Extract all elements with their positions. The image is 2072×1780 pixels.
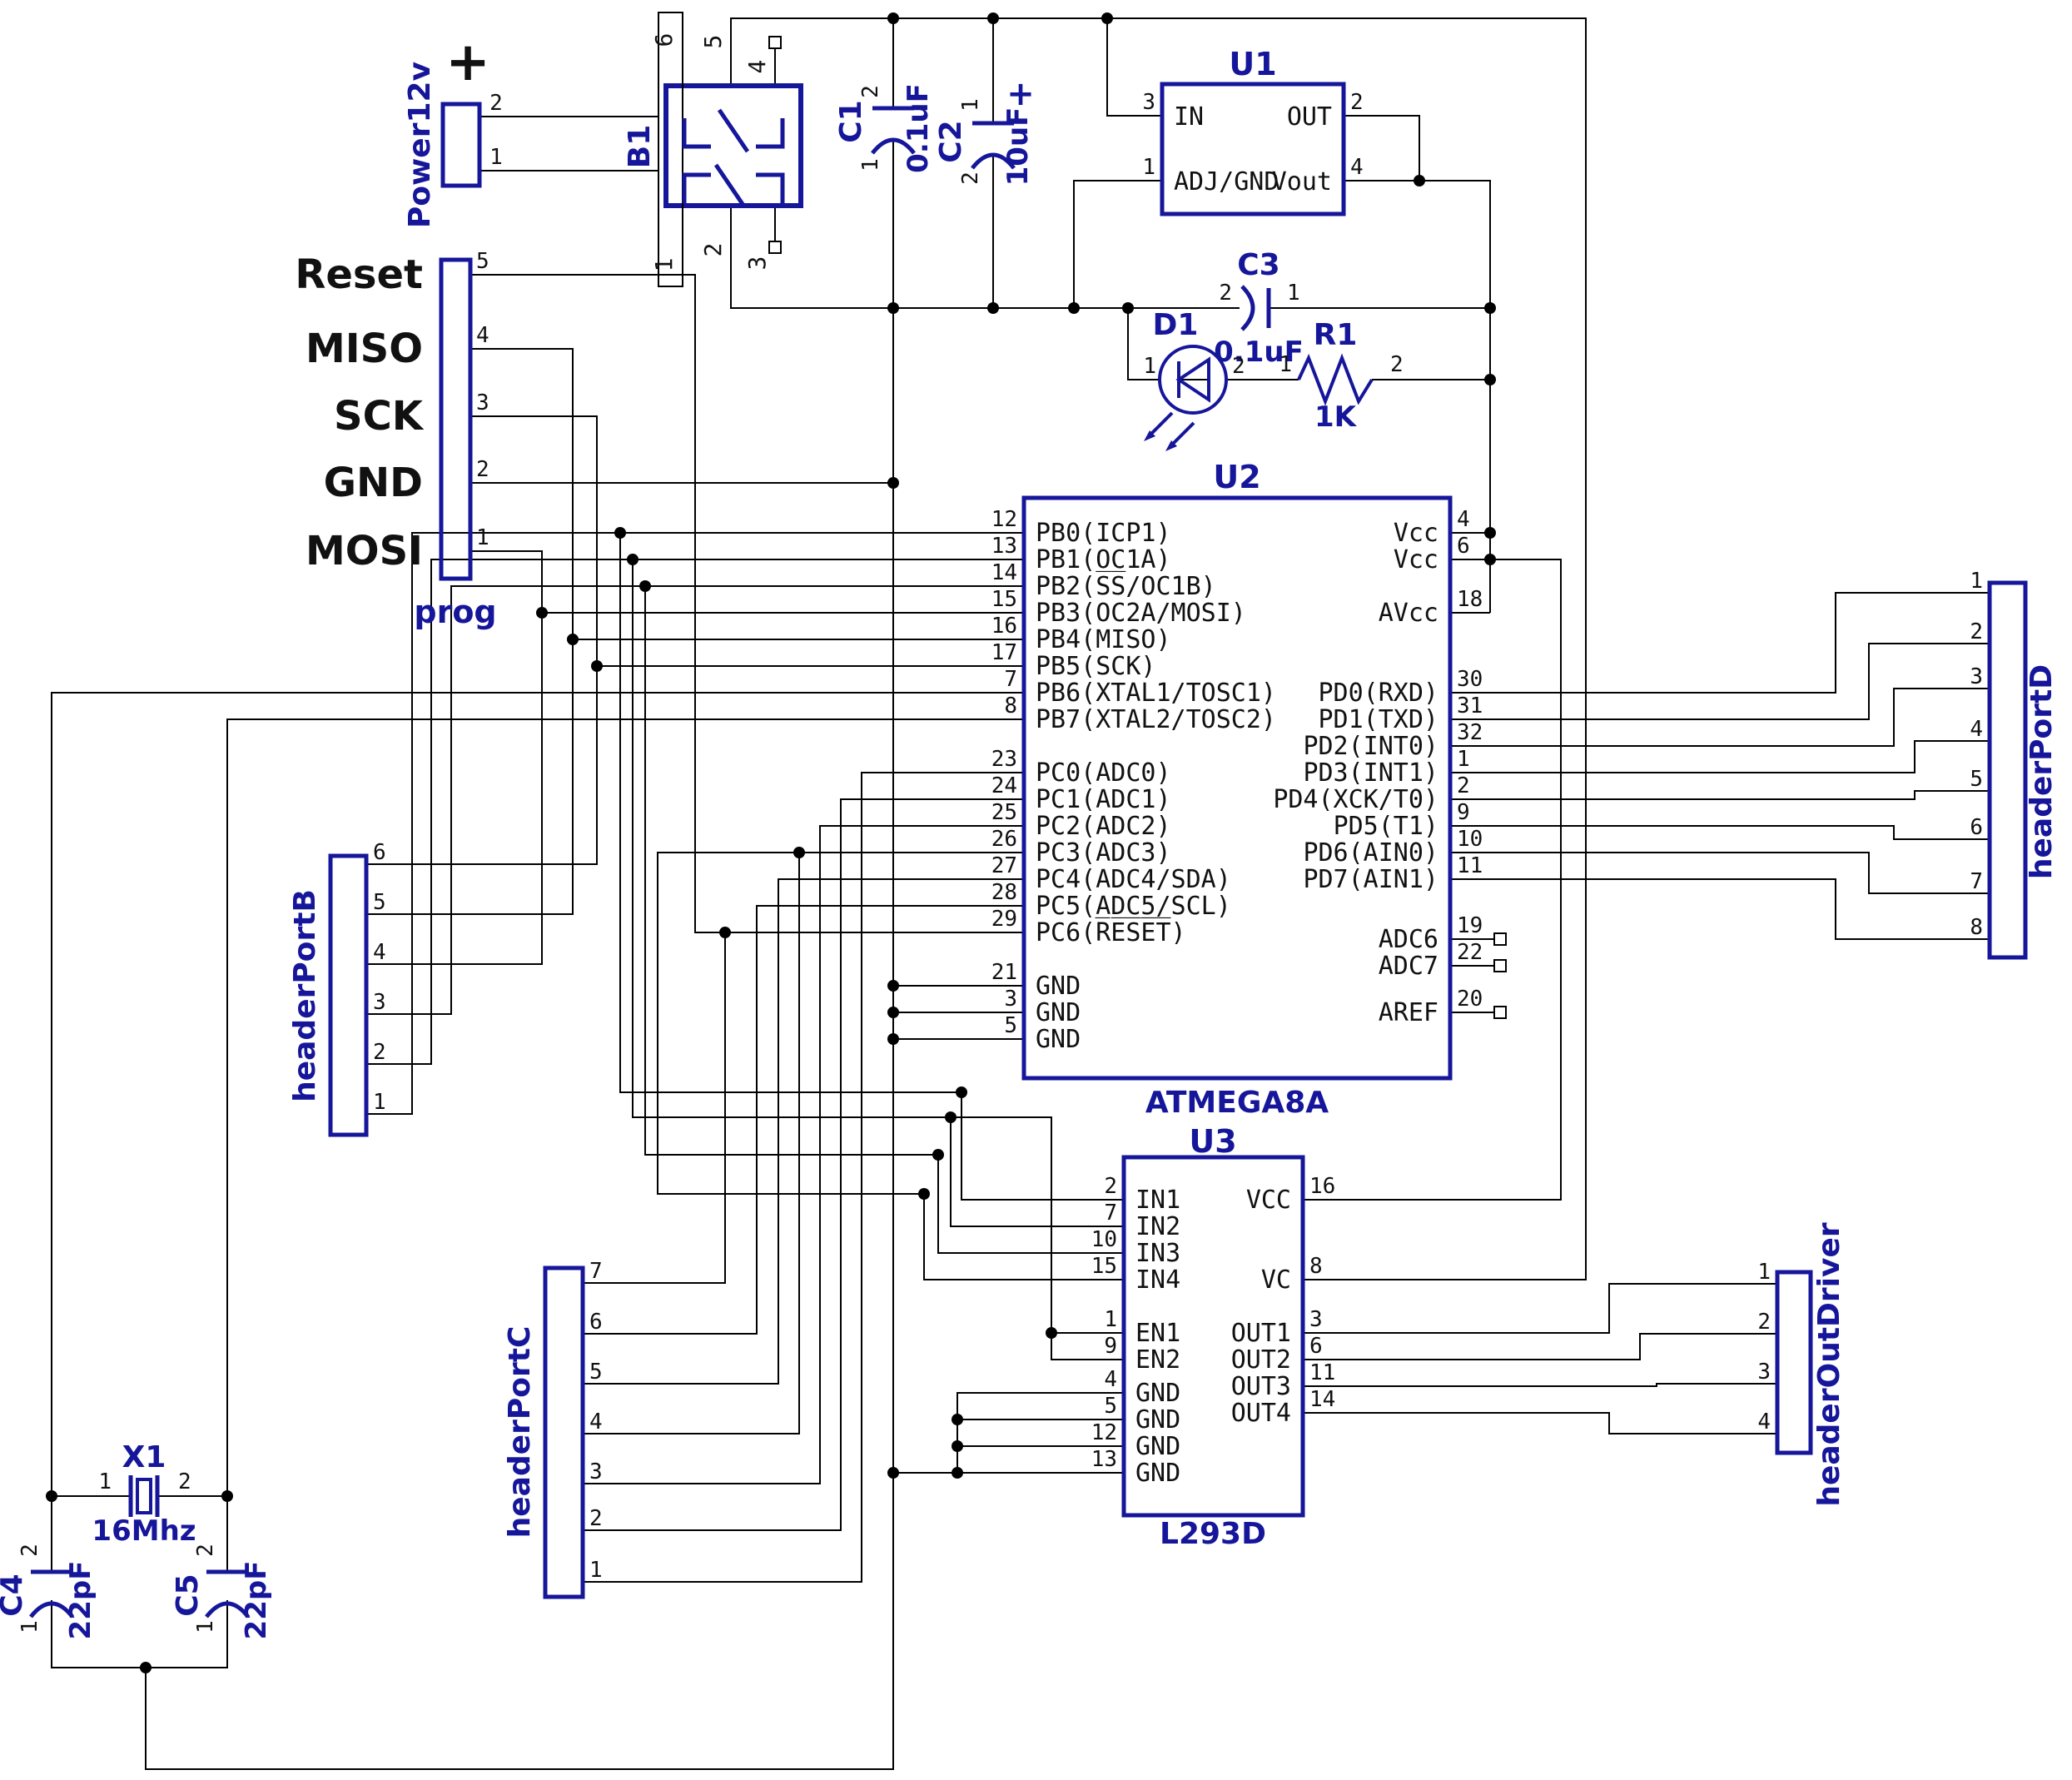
prog-signal-label: MISO: [306, 326, 423, 372]
pin-number: 12: [1091, 1420, 1117, 1445]
pin-number: 14: [1309, 1387, 1335, 1412]
wire: [1450, 879, 1990, 939]
bridge-diode-icon: [756, 118, 783, 147]
pin-name: GND: [1036, 1025, 1081, 1054]
driver-ref: U3: [1189, 1123, 1236, 1160]
pin-number: 21: [991, 960, 1017, 985]
pin-name: PB2(S̅S̅/OC1B): [1036, 571, 1216, 601]
header-port-b-label: headerPortB: [288, 889, 322, 1102]
pin-number: 1: [1143, 354, 1156, 379]
junction-dot: [221, 1490, 233, 1502]
open-terminal: [769, 37, 781, 48]
pin-number: 16: [991, 614, 1017, 639]
pin-number: 13: [1091, 1447, 1117, 1472]
pin-number: 4: [1104, 1367, 1117, 1392]
junction-dot: [887, 12, 899, 24]
pin-name: GND: [1135, 1432, 1180, 1461]
junction-dot: [1484, 302, 1496, 314]
pin-name: PD3(INT1): [1303, 758, 1438, 788]
prog-signal-label: MOSI: [306, 528, 423, 574]
pin-number: 1: [1104, 1307, 1117, 1332]
wire: [1450, 689, 1990, 746]
pin-number: 7: [1004, 667, 1017, 692]
pin-number: 27: [991, 853, 1017, 878]
power12v-connector: [443, 104, 479, 186]
junction-dot: [945, 1111, 956, 1123]
pin-number: 6: [589, 1310, 603, 1335]
pin-name: ADC7: [1379, 952, 1438, 981]
wire: [583, 906, 1024, 1334]
pin-number: 6: [1309, 1334, 1323, 1359]
junction-dot: [1484, 374, 1496, 385]
pin-name: GND: [1036, 972, 1081, 1001]
wire: [52, 693, 1024, 1572]
junction-dot: [567, 634, 579, 645]
pin-number: 3: [373, 990, 386, 1015]
pin-number: 3: [476, 390, 489, 415]
pin-number: 2: [589, 1506, 603, 1531]
pin-name: OUT2: [1231, 1345, 1291, 1375]
wire: [1450, 853, 1990, 893]
pin-number: 1: [1142, 155, 1155, 180]
junction-dot: [1101, 12, 1113, 24]
bridge-label: B1: [623, 125, 657, 169]
pin-name: PD5(T1): [1334, 812, 1438, 841]
pin-number: 8: [1309, 1254, 1323, 1279]
junction-dot: [140, 1662, 152, 1673]
wire: [1303, 1284, 1777, 1333]
bridge-diode-icon: [684, 118, 711, 147]
pin-number: 9: [1457, 800, 1470, 825]
power12v-label: Power12v: [403, 62, 437, 228]
pin-number: 1: [1970, 569, 1983, 594]
pin-number: 1: [1757, 1260, 1771, 1285]
pin-number: 14: [991, 560, 1017, 585]
polarity-plus: +: [1006, 75, 1035, 113]
capacitor-value: 22pF: [64, 1561, 97, 1640]
pin-name: PD0(RXD): [1319, 679, 1439, 708]
pin-name: IN1: [1135, 1186, 1180, 1215]
header-port-d-body: [1990, 583, 2025, 957]
resistor-value: 1K: [1314, 400, 1358, 434]
pin-name: PB7(XTAL2/TOSC2): [1036, 705, 1276, 734]
mcu-part-name: ATMEGA8A: [1145, 1086, 1329, 1120]
pin-name: EN2: [1135, 1345, 1180, 1375]
pin-number: 2: [1232, 354, 1245, 379]
pin-number: 1: [858, 158, 883, 172]
wire: [731, 206, 1240, 308]
pin-number: 11: [1457, 853, 1483, 878]
junction-dot: [1484, 527, 1496, 539]
pin-number: 2: [1457, 773, 1470, 798]
pin-number: 1: [1287, 281, 1300, 306]
pin-name: PD6(AIN0): [1303, 838, 1438, 868]
junction-dot: [887, 980, 899, 992]
resistor-ref: R1: [1314, 318, 1358, 352]
pin-name: GND: [1036, 998, 1081, 1027]
pin-number: 2: [699, 243, 727, 257]
pin-name: PB4(MISO): [1036, 625, 1171, 654]
pin-name: PC6(R̅E̅S̅E̅T̅): [1036, 917, 1186, 947]
pin-number: 19: [1457, 913, 1483, 938]
junction-dot: [1414, 175, 1425, 186]
capacitor-ref: C4: [0, 1574, 29, 1616]
junction-dot: [536, 607, 548, 619]
pin-number: 9: [1104, 1334, 1117, 1359]
wire: [1450, 644, 1990, 719]
bridge-diode-icon: [684, 175, 711, 203]
junction-dot: [887, 1467, 899, 1479]
pin-number: 2: [476, 457, 489, 482]
pin-number: 2: [1390, 352, 1404, 377]
pin-number: 7: [1970, 869, 1983, 894]
pin-name: PC2(ADC2): [1036, 812, 1171, 841]
pin-number: 15: [991, 587, 1017, 612]
pin-number: 3: [1970, 664, 1983, 689]
pin-name: PD4(XCK/T0): [1273, 785, 1438, 814]
junction-dot: [639, 580, 651, 592]
wire: [470, 275, 1024, 932]
pin-number: 2: [1219, 281, 1232, 306]
regulator-ref: U1: [1229, 46, 1276, 82]
pin-number: 29: [991, 907, 1017, 932]
pin-number: 10: [1091, 1227, 1117, 1252]
pin-number: 2: [17, 1544, 42, 1557]
wire: [1074, 181, 1162, 308]
pin-number: 22: [1457, 940, 1483, 965]
pin-number: 5: [1970, 767, 1983, 792]
junction-dot: [887, 1007, 899, 1018]
crystal-body: [137, 1479, 151, 1513]
wire: [227, 719, 1024, 1572]
junction-dot: [46, 1490, 57, 1502]
pin-name: PC5(ADC5/SCL): [1036, 892, 1231, 921]
pin-number: 17: [991, 640, 1017, 665]
pin-number: 3: [1004, 987, 1017, 1012]
pin-number: 25: [991, 800, 1017, 825]
pin-number: 4: [476, 323, 489, 348]
pin-number: 7: [589, 1259, 603, 1284]
pin-number: 1: [373, 1090, 386, 1115]
wire: [1450, 791, 1990, 799]
pin-name: GND: [1135, 1379, 1180, 1408]
pin-number: 5: [1104, 1394, 1117, 1419]
pin-name: PB5(SCK): [1036, 652, 1156, 681]
header-out-driver-label: headerOutDriver: [1812, 1222, 1846, 1507]
pin-name: PD2(INT0): [1303, 732, 1438, 761]
driver-part-name: L293D: [1160, 1517, 1266, 1551]
junction-dot: [719, 927, 731, 938]
pin-name: Vcc: [1394, 519, 1438, 548]
junction-dot: [887, 477, 899, 489]
pin-number: 2: [1757, 1310, 1771, 1335]
pin-number: 1: [1279, 352, 1292, 377]
junction-dot: [932, 1149, 944, 1161]
junction-dot: [918, 1188, 930, 1200]
pin-number: 11: [1309, 1360, 1335, 1385]
pin-name: PC4(ADC4/SDA): [1036, 865, 1231, 894]
pin-number: 24: [991, 773, 1017, 798]
pin-name: GND: [1135, 1405, 1180, 1434]
pin-number: 1: [589, 1558, 603, 1583]
pin-number: 20: [1457, 987, 1483, 1012]
capacitor-value: 22pF: [240, 1561, 273, 1640]
pin-number: 6: [650, 33, 678, 47]
pin-number: 13: [991, 534, 1017, 559]
pin-number: 2: [373, 1040, 386, 1065]
junction-dot: [887, 1033, 899, 1045]
pin-number: 2: [1104, 1174, 1117, 1199]
pin-number: 2: [858, 85, 883, 98]
pin-name: PB3(OC2A/MOSI): [1036, 599, 1246, 628]
junction-dot: [956, 1086, 967, 1098]
capacitor-plate: [1242, 286, 1253, 330]
wire: [1303, 1384, 1777, 1386]
open-terminal: [769, 241, 781, 253]
pin-name: PD1(TXD): [1319, 705, 1439, 734]
pin-number: 7: [1104, 1201, 1117, 1226]
prog-signal-label: SCK: [334, 393, 425, 440]
pin-number: 5: [699, 35, 727, 49]
pin-number: 5: [589, 1360, 603, 1385]
junction-dot: [1068, 302, 1080, 314]
pin-number: 1: [98, 1469, 112, 1494]
pin-name: EN1: [1135, 1319, 1180, 1348]
pin-number: 1: [650, 258, 678, 272]
pin-number: 32: [1457, 720, 1483, 745]
pin-number: 4: [373, 940, 386, 965]
pin-number: 4: [1350, 155, 1364, 180]
pin-name: PB1(OC1A): [1036, 545, 1171, 574]
bridge-pad: [658, 12, 683, 286]
pin-number: 12: [991, 507, 1017, 532]
pin-name: ADJ/GND: [1174, 167, 1279, 196]
pin-number: 5: [476, 249, 489, 274]
schematic-page: Power12v+21B1615243C10.1uF21C210uF+12C30…: [0, 0, 2072, 1780]
pin-number: 2: [1970, 619, 1983, 644]
pin-number: 3: [743, 256, 771, 271]
wire: [893, 1393, 1124, 1473]
capacitor-value: 0.1uF: [902, 83, 935, 173]
junction-dot: [627, 554, 638, 565]
junction-dot: [987, 302, 999, 314]
pin-number: 1: [476, 525, 489, 550]
pin-name: IN: [1174, 102, 1204, 132]
pin-name: PC1(ADC1): [1036, 785, 1171, 814]
header-port-c-body: [545, 1268, 583, 1597]
prog-signal-label: GND: [324, 460, 423, 506]
capacitor-ref: C5: [171, 1574, 205, 1616]
prog-label: prog: [414, 594, 496, 630]
junction-dot: [952, 1414, 963, 1425]
pin-number: 30: [1457, 667, 1483, 692]
plus-sign: +: [445, 32, 490, 93]
pin-number: 1: [17, 1620, 42, 1633]
pin-number: 3: [1309, 1307, 1323, 1332]
pin-number: 2: [1350, 90, 1364, 115]
wire: [1303, 1413, 1777, 1434]
junction-dot: [1484, 554, 1496, 565]
pin-name: PB6(XTAL1/TOSC1): [1036, 679, 1276, 708]
pin-name: OUT: [1287, 102, 1332, 132]
pin-number: 4: [1757, 1410, 1771, 1434]
junction-dot: [1046, 1327, 1057, 1339]
pin-number: 28: [991, 880, 1017, 905]
junction-dot: [1122, 302, 1134, 314]
pin-name: Vout: [1272, 167, 1332, 196]
pin-number: 15: [1091, 1254, 1117, 1279]
pin-number: 3: [1757, 1360, 1771, 1385]
junction-dot: [952, 1440, 963, 1452]
pin-name: IN3: [1135, 1239, 1180, 1268]
pin-name: VCC: [1246, 1186, 1291, 1215]
resistor-icon: [1299, 358, 1372, 401]
prog-signal-label: Reset: [295, 251, 423, 298]
led-arrow: [1172, 423, 1194, 445]
led-ref: D1: [1153, 308, 1199, 342]
capacitor-ref: C1: [834, 100, 868, 142]
bridge-diode-icon: [716, 165, 744, 206]
pin-number: 31: [1457, 694, 1483, 718]
pin-number: 26: [991, 827, 1017, 852]
pin-name: OUT3: [1231, 1372, 1291, 1401]
led-arrow: [1150, 413, 1172, 435]
mcu-ref: U2: [1213, 459, 1260, 495]
pin-number: 2: [193, 1544, 218, 1557]
pin-number: 3: [1142, 90, 1155, 115]
prog-header-body: [441, 260, 470, 579]
pin-name: VC: [1261, 1265, 1291, 1295]
pin-number: 2: [958, 172, 983, 185]
pin-name: AREF: [1379, 998, 1438, 1027]
pin-number: 1: [1457, 747, 1470, 772]
pin-number: 23: [991, 747, 1017, 772]
pin-number: 3: [589, 1459, 603, 1484]
pin-number: 2: [178, 1469, 191, 1494]
pin-name: PD7(AIN1): [1303, 865, 1438, 894]
pin-number: 8: [1970, 915, 1983, 940]
pin-number: 5: [373, 890, 386, 915]
header-port-c-label: headerPortC: [503, 1326, 537, 1539]
pin-number: 6: [373, 840, 386, 865]
pin-number: 1: [958, 98, 983, 112]
pin-name: OUT4: [1231, 1399, 1291, 1428]
pin-number: 6: [1970, 815, 1983, 840]
pin-number: 4: [743, 60, 771, 74]
pin-number: 5: [1004, 1013, 1017, 1038]
junction-dot: [987, 12, 999, 24]
junction-dot: [793, 847, 805, 858]
header-out-driver-body: [1777, 1272, 1811, 1453]
open-terminal: [1494, 960, 1506, 972]
schematic-canvas: Power12v+21B1615243C10.1uF21C210uF+12C30…: [0, 0, 2072, 1780]
open-terminal: [1494, 933, 1506, 945]
pin-name: IN4: [1135, 1265, 1180, 1295]
pin-number: 4: [589, 1410, 603, 1434]
wire: [583, 879, 1024, 1384]
pin-name: Vcc: [1394, 545, 1438, 574]
pin-name: AVcc: [1379, 599, 1438, 628]
pin-name: PC0(ADC0): [1036, 758, 1171, 788]
capacitor-value: 10uF: [1001, 107, 1035, 186]
bridge-diode-icon: [719, 110, 748, 152]
pin-number: 4: [1970, 717, 1983, 742]
pin-name: IN2: [1135, 1212, 1180, 1241]
wire: [951, 1117, 1124, 1226]
pin-number: 6: [1457, 534, 1470, 559]
pin-number: 4: [1457, 507, 1470, 532]
pin-number: 1: [193, 1620, 218, 1633]
crystal-ref: X1: [122, 1440, 166, 1474]
pin-number: 10: [1457, 827, 1483, 852]
capacitor-ref: C2: [934, 120, 968, 162]
pin-number: 16: [1309, 1174, 1335, 1199]
wire: [583, 932, 725, 1283]
header-port-d-label: headerPortD: [2025, 664, 2059, 879]
capacitor-ref: C3: [1237, 248, 1279, 282]
pin-number: 18: [1457, 587, 1483, 612]
pin-number: 2: [489, 91, 503, 116]
junction-dot: [614, 527, 626, 539]
wire: [1450, 826, 1990, 839]
crystal-value: 16Mhz: [92, 1514, 196, 1548]
junction-dot: [591, 660, 603, 672]
wire: [583, 853, 799, 1434]
pin-name: OUT1: [1231, 1319, 1291, 1348]
pin-name: ADC6: [1379, 925, 1438, 954]
junction-dot: [887, 302, 899, 314]
pin-number: 1: [489, 145, 503, 170]
pin-name: PB0(ICP1): [1036, 519, 1171, 548]
pin-name: GND: [1135, 1459, 1180, 1488]
junction-dot: [952, 1467, 963, 1479]
bridge-diode-icon: [756, 175, 783, 203]
pin-number: 8: [1004, 694, 1017, 718]
pin-name: PC3(ADC3): [1036, 838, 1171, 868]
wire: [1303, 1334, 1777, 1360]
header-port-b-body: [330, 856, 366, 1135]
open-terminal: [1494, 1007, 1506, 1018]
